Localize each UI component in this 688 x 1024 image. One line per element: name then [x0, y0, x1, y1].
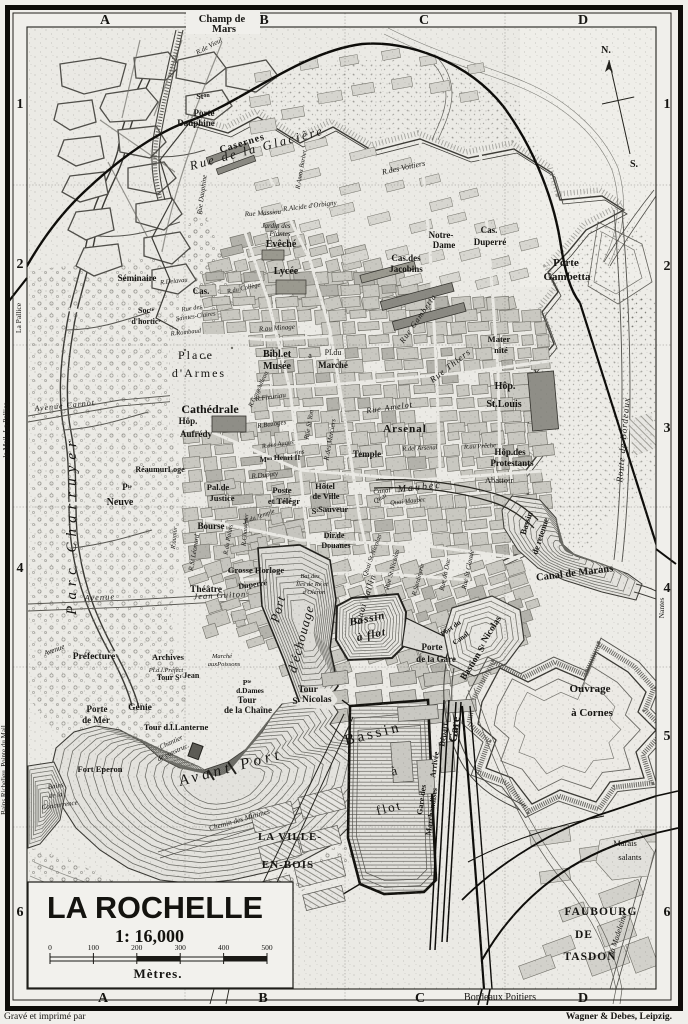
svg-text:Préfecture: Préfecture: [73, 652, 116, 662]
svg-text:Gravé et imprimé par: Gravé et imprimé par: [4, 1012, 86, 1022]
svg-text:à Cornes: à Cornes: [571, 707, 614, 719]
svg-text:400: 400: [218, 943, 230, 952]
svg-text:Musée: Musée: [263, 361, 291, 372]
svg-text:Fort Eperon: Fort Eperon: [78, 764, 123, 774]
svg-text:Justice: Justice: [209, 493, 234, 503]
svg-text:6: 6: [17, 905, 24, 920]
svg-text:Jardin des: Jardin des: [261, 222, 290, 230]
svg-text:Cas.: Cas.: [193, 286, 210, 296]
svg-text:Tour d.l.Lanterne: Tour d.l.Lanterne: [144, 722, 209, 732]
svg-text:le Mail. La Pallice: le Mail. La Pallice: [1, 402, 10, 458]
svg-text:Tour: Tour: [298, 685, 318, 695]
svg-text:Aufrédy: Aufrédy: [180, 429, 212, 439]
svg-text:Dame: Dame: [433, 240, 456, 250]
svg-text:200: 200: [131, 943, 143, 952]
svg-text:Bains Richelieu. Pointe du Ma: Bains Richelieu. Pointe du Mail: [0, 725, 8, 815]
svg-text:A: A: [100, 13, 111, 28]
svg-text:St.Louis: St.Louis: [486, 399, 521, 410]
svg-text:Jacobins: Jacobins: [389, 264, 423, 274]
svg-text:1: 1: [664, 97, 671, 112]
svg-text:A: A: [98, 991, 109, 1006]
svg-text:C: C: [419, 13, 429, 28]
svg-text:D: D: [578, 991, 588, 1006]
svg-text:Séminaire: Séminaire: [118, 273, 157, 283]
svg-text:Tour: Tour: [238, 695, 257, 705]
svg-text:Pl.du: Pl.du: [325, 348, 342, 357]
svg-text:Douanes: Douanes: [321, 541, 350, 550]
svg-text:D: D: [578, 13, 588, 28]
svg-text:4: 4: [664, 581, 671, 596]
svg-text:5: 5: [664, 729, 671, 744]
svg-text:d'hortice: d'hortice: [131, 317, 161, 326]
svg-text:d'Armes: d'Armes: [172, 366, 226, 380]
svg-text:500: 500: [261, 943, 273, 952]
svg-text:Bibl.et: Bibl.et: [263, 349, 292, 360]
svg-text:2: 2: [664, 259, 671, 274]
svg-text:Evêché: Evêché: [266, 239, 297, 250]
svg-text:Îles de Ré et: Îles de Ré et: [295, 580, 328, 588]
svg-text:Hôp.: Hôp.: [179, 416, 198, 426]
svg-text:2: 2: [17, 257, 24, 272]
svg-text:Nantes: Nantes: [657, 598, 666, 619]
svg-text:Porte: Porte: [194, 108, 215, 118]
svg-text:B: B: [259, 13, 268, 28]
svg-text:Mètres.: Mètres.: [134, 966, 183, 981]
svg-text:N.: N.: [601, 45, 611, 56]
svg-text:d'Oléron: d'Oléron: [303, 589, 326, 596]
svg-text:Cathédrale: Cathédrale: [181, 402, 239, 416]
svg-text:Porte: Porte: [87, 704, 108, 714]
svg-text:Parc Charruyer: Parc Charruyer: [64, 435, 80, 616]
svg-text:salants: salants: [618, 852, 641, 862]
svg-text:100: 100: [88, 943, 100, 952]
svg-text:de Mer: de Mer: [82, 715, 110, 725]
svg-text:Cas.: Cas.: [481, 225, 498, 235]
svg-text:Duperré: Duperré: [474, 237, 507, 247]
svg-text:RéaumurLoge: RéaumurLoge: [135, 465, 185, 474]
svg-text:auxPoissons: auxPoissons: [208, 661, 241, 668]
svg-text:EN-BOIS: EN-BOIS: [262, 859, 314, 871]
svg-text:Hôp.: Hôp.: [495, 381, 516, 392]
svg-text:Lycée: Lycée: [274, 266, 299, 277]
svg-text:Mars: Mars: [212, 24, 236, 35]
svg-text:Marais: Marais: [613, 838, 637, 848]
svg-text:LA VILLE-: LA VILLE-: [258, 831, 322, 843]
svg-text:Temple: Temple: [353, 449, 381, 459]
svg-text:Marché: Marché: [318, 360, 348, 370]
svg-text:S.: S.: [630, 159, 639, 170]
svg-text:Poste: Poste: [272, 485, 292, 495]
svg-text:Ouvrage: Ouvrage: [570, 683, 611, 695]
svg-text:Neuve: Neuve: [107, 497, 134, 508]
svg-text:Bordeaux Poitiers: Bordeaux Poitiers: [464, 992, 536, 1003]
svg-text:nité: nité: [494, 345, 508, 355]
svg-text:Bat.des: Bat.des: [300, 573, 320, 580]
svg-text:B: B: [258, 991, 267, 1006]
svg-text:Pal.de: Pal.de: [207, 482, 230, 492]
svg-text:Génie: Génie: [128, 703, 152, 713]
svg-text:Marché: Marché: [211, 653, 233, 660]
svg-text:Porte: Porte: [422, 642, 443, 652]
svg-text:Abattoir: Abattoir: [485, 475, 513, 485]
svg-text:de la Gare: de la Gare: [416, 654, 456, 664]
svg-text:Mater: Mater: [488, 334, 511, 344]
svg-text:Notre-: Notre-: [429, 230, 454, 240]
svg-text:de Ville: de Ville: [312, 491, 339, 501]
svg-text:Grosse Horloge: Grosse Horloge: [228, 565, 284, 575]
svg-text:C: C: [415, 991, 425, 1006]
svg-text:1: 1: [17, 97, 24, 112]
svg-text:0: 0: [48, 943, 52, 952]
svg-text:Hôp.des: Hôp.des: [494, 447, 526, 457]
svg-text:Archives: Archives: [152, 652, 185, 662]
svg-text:Protestants: Protestants: [490, 458, 534, 468]
svg-text:DE: DE: [575, 929, 593, 941]
svg-text:Dauphine: Dauphine: [177, 118, 215, 128]
svg-text:La Pallice: La Pallice: [14, 302, 23, 333]
svg-text:Arsenal: Arsenal: [383, 423, 427, 435]
svg-text:LA ROCHELLE: LA ROCHELLE: [47, 890, 263, 925]
svg-text:Avenue: Avenue: [83, 591, 115, 603]
svg-text:Wagner & Debes, Leipzig.: Wagner & Debes, Leipzig.: [566, 1012, 672, 1022]
svg-text:de la Chaîne: de la Chaîne: [224, 705, 272, 715]
svg-text:Bourse: Bourse: [198, 521, 225, 531]
svg-text:Hôtel: Hôtel: [315, 481, 335, 491]
svg-text:4: 4: [17, 561, 24, 576]
svg-text:Place: Place: [178, 348, 214, 362]
svg-text:3: 3: [664, 421, 671, 436]
svg-text:Porte: Porte: [553, 257, 579, 269]
svg-text:d.Dames: d.Dames: [236, 686, 264, 695]
svg-text:Dir.de: Dir.de: [324, 531, 345, 540]
svg-text:300: 300: [175, 943, 187, 952]
svg-text:et Télégr: et Télégr: [268, 496, 300, 506]
svg-text:Plantes: Plantes: [269, 230, 291, 238]
svg-text:6: 6: [664, 905, 671, 920]
svg-text:Gambetta: Gambetta: [543, 271, 591, 283]
svg-text:a: a: [308, 351, 312, 360]
svg-text:Cas.des: Cas.des: [391, 253, 421, 263]
